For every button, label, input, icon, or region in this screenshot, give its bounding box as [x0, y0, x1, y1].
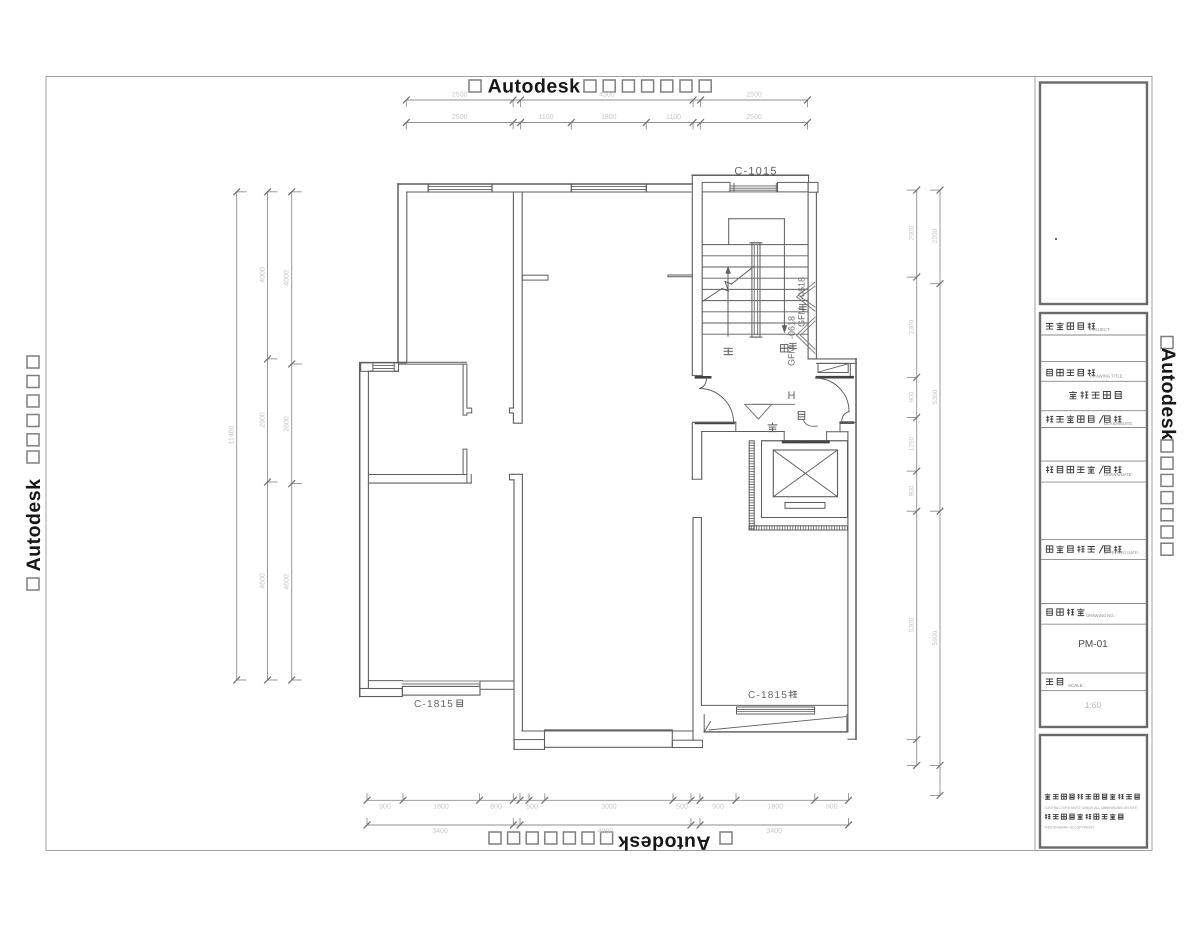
svg-text:500: 500: [676, 804, 688, 811]
svg-text:2300: 2300: [909, 319, 916, 334]
svg-text:4300: 4300: [599, 92, 615, 99]
svg-text:2500: 2500: [452, 92, 468, 99]
svg-text:DRAWING TITLE:: DRAWING TITLE:: [1090, 374, 1124, 379]
svg-text:3400: 3400: [432, 828, 448, 835]
svg-text:2200: 2200: [932, 228, 939, 243]
svg-text:5900: 5900: [932, 630, 939, 645]
svg-text:4000: 4000: [260, 267, 267, 283]
svg-text:C-1015: C-1015: [734, 166, 777, 178]
svg-text:4600: 4600: [284, 574, 291, 590]
svg-text:1100: 1100: [666, 114, 681, 121]
svg-text:1800: 1800: [768, 804, 784, 811]
svg-text:2500: 2500: [746, 114, 762, 121]
svg-text:900: 900: [712, 804, 724, 811]
svg-text:1800: 1800: [601, 114, 617, 121]
svg-text:C-1815: C-1815: [748, 690, 788, 701]
svg-text:3400: 3400: [767, 828, 783, 835]
svg-text:-0618: -0618: [796, 277, 806, 300]
svg-text:-0618: -0618: [786, 316, 796, 339]
svg-text:DESIGN/DATE:: DESIGN/DATE:: [1104, 421, 1133, 426]
svg-text:500: 500: [526, 804, 538, 811]
svg-text:1250: 1250: [909, 436, 916, 451]
svg-text:H: H: [788, 390, 796, 402]
svg-text:2500: 2500: [746, 92, 762, 99]
svg-text:DRAWING NO.:: DRAWING NO.:: [1086, 613, 1116, 618]
svg-text:2900: 2900: [260, 412, 267, 428]
svg-text:Autodesk: Autodesk: [488, 76, 581, 98]
svg-text:900: 900: [826, 804, 838, 811]
svg-text:1100: 1100: [538, 114, 553, 121]
svg-text:DRAWN/DATE:: DRAWN/DATE:: [1104, 472, 1133, 477]
svg-text:PROJECT:: PROJECT:: [1090, 327, 1110, 332]
svg-text:11400: 11400: [229, 425, 236, 444]
svg-text:1800: 1800: [433, 804, 449, 811]
svg-text:4000: 4000: [284, 270, 291, 286]
svg-text:2500: 2500: [452, 114, 468, 121]
svg-text:THIS DRAWING IS COPYRIGHT: THIS DRAWING IS COPYRIGHT: [1044, 826, 1094, 830]
svg-text:2600: 2600: [284, 416, 291, 432]
svg-text:5300: 5300: [909, 617, 916, 632]
svg-text:CONTRACTORS MUST CHECK ALL DIM: CONTRACTORS MUST CHECK ALL DIMENSIONS ON…: [1044, 806, 1138, 810]
svg-text:900: 900: [909, 485, 916, 496]
svg-text:APPROVED DATE:: APPROVED DATE:: [1104, 550, 1139, 555]
svg-text:2000: 2000: [909, 225, 916, 240]
svg-text:900: 900: [379, 804, 391, 811]
svg-text:C-1815: C-1815: [414, 699, 454, 710]
svg-text:5300: 5300: [932, 389, 939, 404]
svg-text:4000: 4000: [598, 828, 614, 835]
svg-text:1:60: 1:60: [1085, 700, 1102, 710]
svg-text:800: 800: [490, 804, 502, 811]
svg-text:Autodesk: Autodesk: [618, 832, 711, 854]
svg-text:SCALE:: SCALE:: [1068, 683, 1084, 688]
svg-text:Autodesk: Autodesk: [23, 479, 45, 572]
svg-text:4600: 4600: [260, 573, 267, 589]
svg-text:3000: 3000: [601, 804, 617, 811]
svg-text:PM-01: PM-01: [1078, 639, 1108, 650]
svg-text:GFM: GFM: [796, 307, 806, 327]
svg-text:GFM: GFM: [786, 346, 796, 366]
svg-text:Autodesk: Autodesk: [1157, 348, 1179, 441]
svg-text:900: 900: [909, 391, 916, 402]
